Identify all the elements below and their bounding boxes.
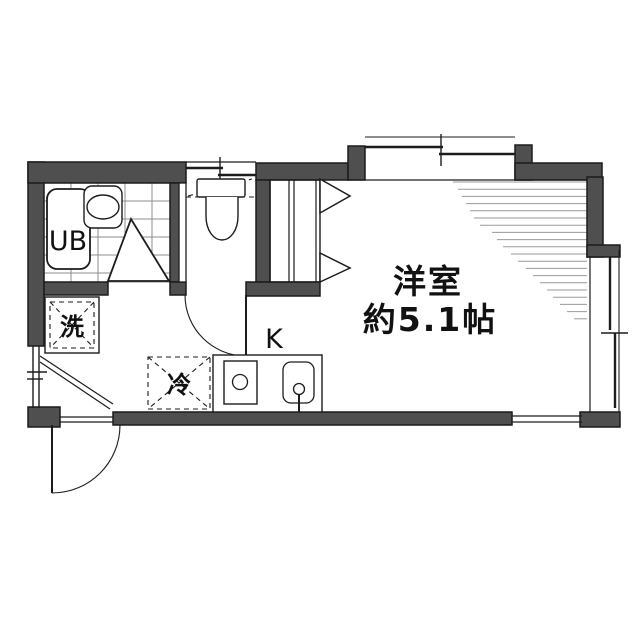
toilet-room xyxy=(185,157,256,356)
bottom-window xyxy=(512,416,582,422)
entrance-door-arc xyxy=(52,425,120,493)
toilet-bowl xyxy=(206,197,238,240)
closet-door-triangle-bottom xyxy=(320,253,350,282)
wall-corner-bottom-left xyxy=(28,407,60,427)
window-post-left xyxy=(348,146,365,180)
unit-bath-label: UB xyxy=(49,226,87,257)
closet-body xyxy=(270,180,320,282)
room-name-label: 洋室 xyxy=(393,262,463,301)
wall-top-left xyxy=(28,162,186,183)
genkan-step-line-1 xyxy=(40,356,113,404)
wall-toilet-right xyxy=(256,180,270,282)
sloped-ceiling-hatch xyxy=(453,182,587,319)
closet-door-triangle-top xyxy=(320,179,350,213)
wall-bath-bottom xyxy=(44,282,108,295)
wall-corner-bottom-right xyxy=(580,412,620,427)
wall-closet-bottom xyxy=(246,282,320,296)
partition-toilet-left xyxy=(179,183,186,282)
fridge-box: 冷 xyxy=(148,357,210,409)
genkan-step-line-2 xyxy=(40,362,110,409)
toilet-door-arc xyxy=(185,295,246,356)
wall-top-closet xyxy=(256,163,348,180)
left-window xyxy=(27,346,47,408)
unit-bath-room: UB xyxy=(47,186,169,281)
wall-bottom xyxy=(113,412,512,425)
washer-box: 洗 xyxy=(45,297,99,353)
toilet-tank xyxy=(197,179,245,197)
closet xyxy=(270,179,350,282)
floor-plan-svg: UB xyxy=(0,0,640,640)
right-window xyxy=(590,250,628,412)
floor-plan-page: UB xyxy=(0,0,640,640)
room-area-label: 約5.1帖 xyxy=(363,300,497,339)
kitchen: K xyxy=(213,324,322,412)
wall-right-jut xyxy=(587,245,620,257)
wall-left xyxy=(28,162,44,346)
wall-stub-bath xyxy=(170,282,186,295)
washer-label: 洗 xyxy=(60,313,84,341)
fridge-label: 冷 xyxy=(167,371,191,399)
wash-basin-bowl xyxy=(87,195,119,219)
bath-folding-door xyxy=(108,219,169,281)
kitchen-label: K xyxy=(265,324,284,355)
